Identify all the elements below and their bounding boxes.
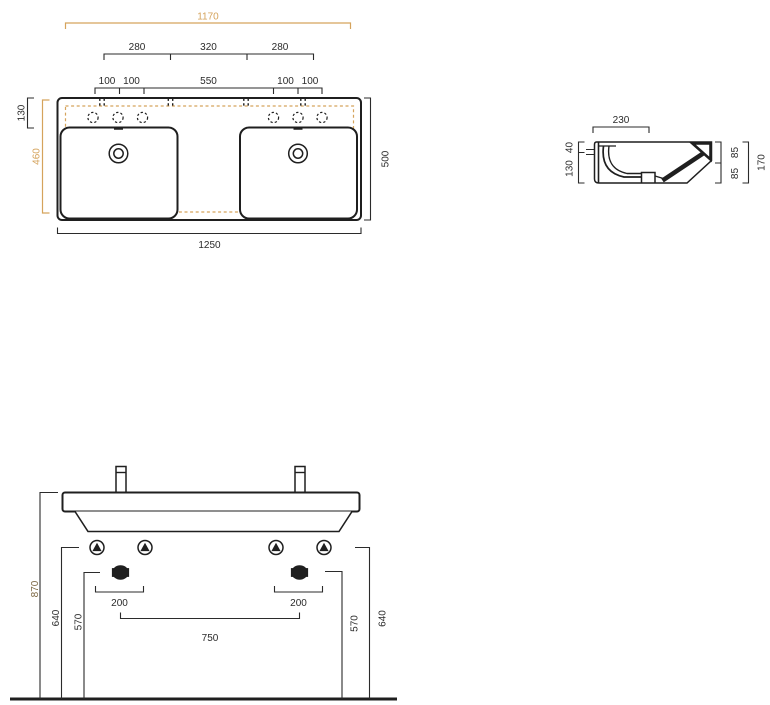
dim-tap-spans: 280 320 280 (104, 42, 314, 60)
dim-label: 570 (74, 613, 85, 630)
dim-label: 200 (290, 598, 307, 609)
dim-label: 280 (129, 42, 146, 53)
dim-label: 170 (757, 154, 768, 171)
left-bowl (61, 128, 178, 219)
section-view: 230 40 130 85 85 170 (565, 115, 768, 183)
dim-label: 100 (123, 76, 140, 87)
dim-bowl-top-width: 230 (593, 115, 649, 133)
left-drain-icon (109, 144, 128, 163)
dim-ledge-depth: 130 (17, 98, 35, 128)
dim-label: 100 (99, 76, 116, 87)
dim-label: 40 (565, 142, 576, 154)
technical-drawing: 1170 280 320 280 100 100 550 100 100 130… (0, 0, 770, 705)
dim-fixing-pitch-right: 200 (275, 586, 323, 609)
dim-fixing-span: 750 (121, 613, 300, 645)
dim-hole-pitches: 100 100 550 100 100 (95, 76, 322, 94)
basin-body (63, 493, 360, 512)
dim-label: 280 (272, 42, 289, 53)
section-profile (586, 142, 712, 183)
dim-label: 870 (30, 580, 41, 597)
dim-total-depth: 500 (364, 98, 392, 220)
dim-label: 130 (565, 160, 576, 177)
dim-label: 750 (202, 633, 219, 644)
plan-view: 1170 280 320 280 100 100 550 100 100 130… (17, 12, 392, 252)
fixing-point-icons (90, 541, 331, 555)
right-faucet (295, 467, 305, 493)
dim-label: 230 (613, 115, 630, 126)
dim-label: 570 (350, 615, 361, 632)
dim-total-height: 170 (743, 142, 768, 183)
dim-label: 1170 (197, 12, 219, 23)
dim-label: 460 (32, 148, 43, 165)
dim-label: 130 (17, 104, 28, 121)
dim-label: 640 (51, 609, 62, 626)
dim-label: 550 (200, 76, 217, 87)
dim-waste-height-right: 570 (325, 572, 361, 700)
dim-bowl-depth: 460 (32, 100, 50, 213)
dim-label: 1250 (198, 240, 221, 251)
right-bowl (240, 128, 357, 219)
dim-tap-ledge-width: 1170 (66, 12, 351, 30)
dim-total-width: 1250 (58, 228, 362, 252)
dim-rim-height: 870 (30, 493, 58, 700)
left-faucet (116, 467, 126, 493)
waste-outlet-icons (112, 565, 308, 579)
right-drain-icon (289, 144, 308, 163)
dim-label: 320 (200, 42, 217, 53)
dim-label: 100 (277, 76, 294, 87)
basin-skirt (75, 512, 352, 532)
front-view: 870 640 570 570 640 200 200 750 (10, 467, 397, 700)
dim-label: 85 (730, 168, 741, 180)
dim-fixing-pitch-left: 200 (96, 586, 144, 609)
dim-label: 500 (381, 150, 392, 167)
washbasin-spec-sheet: 1170 280 320 280 100 100 550 100 100 130… (0, 0, 770, 705)
dim-label: 85 (730, 147, 741, 159)
dim-label: 200 (111, 598, 128, 609)
dim-label: 640 (378, 610, 389, 627)
dim-label: 100 (302, 76, 319, 87)
dim-rim-and-apron: 40 130 (565, 142, 585, 183)
dim-half-heights: 85 85 (715, 142, 741, 183)
